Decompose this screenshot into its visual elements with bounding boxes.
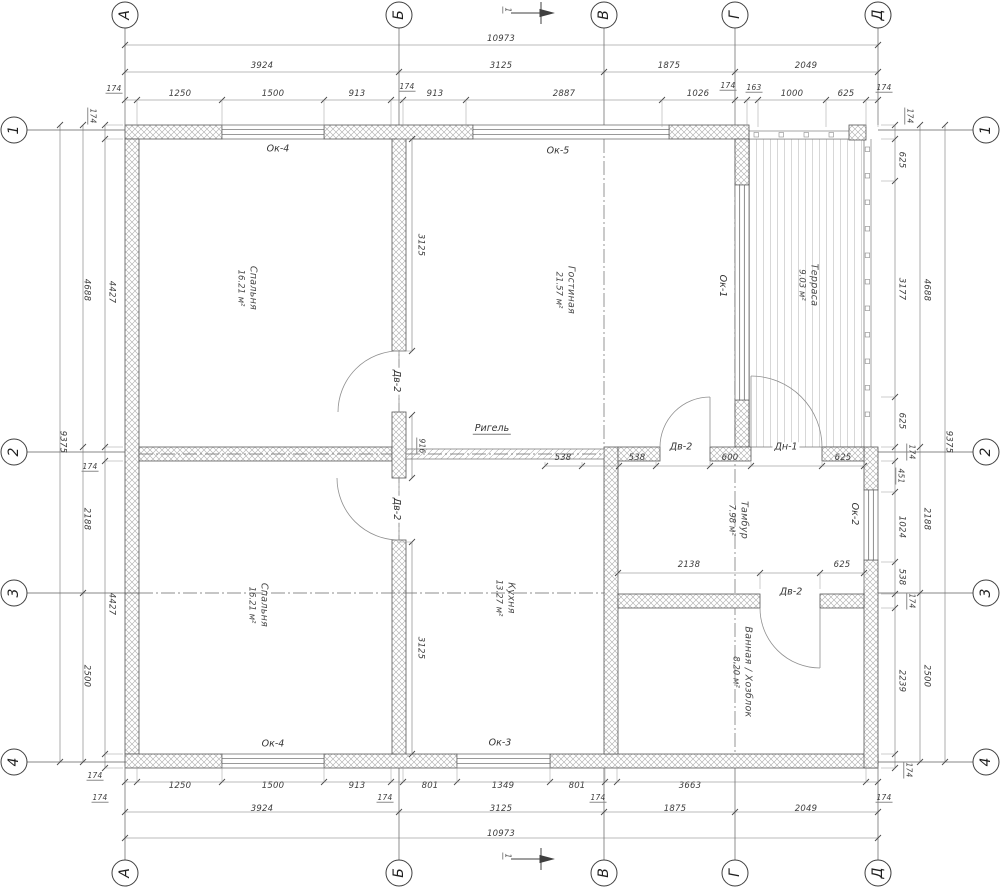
axis-col-Д-top: Д	[871, 10, 885, 21]
dim-bottom-wall: 174	[590, 794, 607, 803]
dim-top-wall: 174	[106, 85, 123, 94]
dim-top-seg: 625	[838, 90, 855, 99]
axis-row-3-right: 3	[979, 589, 993, 598]
section-number: 1	[503, 853, 512, 860]
axis-col-Б-bottom: Б	[392, 868, 406, 878]
axis-row-1-right: 1	[979, 126, 993, 135]
dim-top-seg: 1026	[687, 90, 709, 99]
window-tag: Ок-1	[717, 273, 727, 300]
dim-top-g-d: 2049	[795, 62, 817, 71]
dim-interior: 2138	[678, 561, 700, 570]
dim-left-wall: 174	[88, 108, 97, 125]
dim-top-seg: 913	[427, 90, 444, 99]
section-number: 1	[503, 7, 512, 14]
dim-right-seg: 2239	[897, 670, 906, 692]
dim-interior: 625	[834, 561, 851, 570]
dim-right-wall: 174	[907, 593, 916, 610]
dim-left-3-4: 2500	[82, 665, 91, 687]
dim-interior: 600	[722, 454, 739, 463]
room-area: 21.57 м²	[554, 266, 564, 314]
dim-interior: 538	[555, 454, 572, 463]
dim-bottom-seg: 913	[349, 782, 366, 791]
room-label: Терраса9.03 м²	[797, 264, 820, 307]
dim-bottom-g-d: 2049	[795, 805, 817, 814]
dim-top-seg: 1250	[169, 90, 191, 99]
room-name: Ванная / Хозблок	[743, 626, 754, 717]
axis-col-В-bottom: В	[597, 868, 611, 878]
dim-top-seg: 1500	[262, 90, 284, 99]
dim-top-wall: 174	[399, 83, 416, 92]
room-area: 16.21 м²	[247, 583, 257, 627]
axis-col-Г-top: Г	[728, 11, 742, 19]
dim-bottom-wall: 174	[876, 794, 893, 803]
room-area: 16.21 м²	[236, 266, 246, 310]
dim-top-seg: 2887	[553, 90, 575, 99]
dim-right-3-4: 2500	[922, 665, 931, 687]
room-label: Спальня16.21 м²	[236, 266, 259, 310]
dim-interior: 3125	[416, 637, 425, 659]
dim-left-seg: 4427	[107, 281, 116, 303]
window-tag: Ок-2	[849, 501, 859, 528]
dim-top-seg: 913	[349, 90, 366, 99]
axis-row-1-left: 1	[7, 126, 21, 135]
dim-right-2-3: 2188	[922, 508, 931, 530]
door-tag: Дв-2	[668, 442, 695, 452]
dim-right-seg: 1024	[897, 516, 906, 538]
room-name: Кухня	[506, 580, 517, 617]
door-tag: Дв-2	[391, 368, 401, 395]
dim-bottom-seg: 1250	[169, 782, 191, 791]
dim-top-wall: 174	[876, 84, 893, 93]
dim-right-wall: 174	[904, 762, 913, 779]
axis-col-А-top: А	[118, 10, 132, 20]
room-area: 7.98 м²	[727, 501, 737, 539]
room-label: Спальня16.21 м²	[247, 583, 270, 627]
window-tag: Ок-4	[260, 739, 287, 749]
dim-right-seg: 3177	[897, 278, 906, 300]
dim-bottom-v-g: 1875	[664, 805, 686, 814]
axis-col-В-top: В	[597, 10, 611, 20]
window-tag: Ок-3	[487, 738, 514, 748]
dim-right-overall: 9375	[944, 431, 953, 453]
dim-bottom-b-v: 3125	[490, 805, 512, 814]
window-tag: Ок-4	[265, 144, 292, 154]
room-name: Тамбур	[739, 501, 750, 539]
dim-left-seg: 4427	[107, 593, 116, 615]
dim-top-a-b: 3924	[251, 62, 273, 71]
axis-row-3-left: 3	[7, 589, 21, 598]
door-tag: Дв-2	[391, 496, 401, 523]
dim-bottom-wall: 174	[92, 794, 109, 803]
dim-top-seg: 1000	[781, 90, 803, 99]
label-layer: 1097339243125187520491741250150091317491…	[0, 0, 1000, 889]
dim-left-wall: 174	[82, 463, 99, 472]
window-tag: Ок-5	[545, 146, 572, 156]
dim-right-seg: 625	[897, 413, 906, 430]
dim-right-1-2: 4688	[922, 279, 931, 301]
dim-right-seg: 451	[896, 468, 905, 485]
room-area: 13.27 м²	[494, 580, 504, 617]
axis-row-2-right: 2	[979, 448, 993, 457]
room-label: Кухня13.27 м²	[494, 580, 517, 617]
room-label: Ванная / Хозблок8.20 м²	[731, 626, 754, 717]
room-area: 8.20 м²	[731, 626, 741, 717]
dim-bottom-seg: 801	[569, 782, 586, 791]
dim-top-wall: 174	[720, 82, 737, 91]
dim-bottom-seg: 1349	[492, 782, 514, 791]
axis-col-А-bottom: А	[118, 868, 132, 878]
dim-bottom-seg: 3663	[679, 782, 701, 791]
dim-interior: 625	[835, 454, 852, 463]
axis-col-Б-top: Б	[392, 10, 406, 20]
dim-right-seg: 538	[897, 569, 906, 586]
room-label: Гостиная21.57 м²	[554, 266, 577, 314]
dim-top-v-g: 1875	[658, 62, 680, 71]
dim-left-overall: 9375	[58, 431, 67, 453]
dim-right-wall: 174	[905, 108, 914, 125]
dim-bottom-seg: 801	[422, 782, 439, 791]
beam-tag: Ригель	[473, 424, 511, 435]
dim-left-wall: 174	[87, 772, 104, 781]
door-tag: Дв-2	[778, 587, 805, 597]
dim-interior: 3125	[416, 234, 425, 256]
room-name: Спальня	[259, 583, 270, 627]
axis-col-Г-bottom: Г	[728, 869, 742, 877]
room-area: 9.03 м²	[797, 264, 807, 307]
axis-col-Д-bottom: Д	[871, 868, 885, 879]
room-name: Гостиная	[566, 266, 577, 314]
dim-right-seg: 625	[897, 152, 906, 169]
door-tag: Дн-1	[772, 442, 799, 452]
dim-interior: 538	[629, 454, 646, 463]
dim-bottom-overall: 10973	[487, 830, 515, 839]
room-label: Тамбур7.98 м²	[727, 501, 750, 539]
dim-interior: 916	[417, 438, 426, 455]
dim-bottom-a-b: 3924	[251, 805, 273, 814]
axis-row-2-left: 2	[7, 448, 21, 457]
dim-bottom-wall: 174	[377, 794, 394, 803]
dim-right-wall: 174	[907, 444, 916, 461]
axis-row-4-left: 4	[7, 758, 21, 767]
dim-left-1-2: 4688	[82, 279, 91, 301]
axis-row-4-right: 4	[979, 758, 993, 767]
dim-top-seg: 163	[746, 84, 763, 93]
dim-left-2-3: 2188	[82, 508, 91, 530]
room-name: Терраса	[809, 264, 820, 307]
dim-top-overall: 10973	[487, 35, 515, 44]
dim-bottom-seg: 1500	[262, 782, 284, 791]
dim-top-b-v: 3125	[490, 62, 512, 71]
room-name: Спальня	[248, 266, 259, 310]
